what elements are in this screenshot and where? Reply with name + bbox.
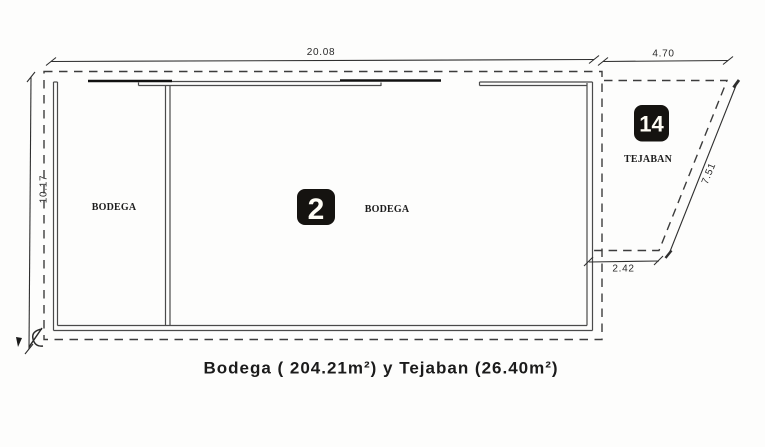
svg-text:7.51: 7.51 xyxy=(700,161,719,186)
svg-text:BODEGA: BODEGA xyxy=(365,204,410,215)
svg-text:2.42: 2.42 xyxy=(612,264,634,275)
svg-text:BODEGA: BODEGA xyxy=(92,202,137,213)
svg-text:Bodega ( 204.21m²) y Tejaban (: Bodega ( 204.21m²) y Tejaban (26.40m²) xyxy=(203,359,558,378)
svg-text:20.08: 20.08 xyxy=(307,47,336,58)
svg-text:TEJABAN: TEJABAN xyxy=(624,154,673,165)
svg-text:14: 14 xyxy=(639,112,664,137)
svg-text:2: 2 xyxy=(308,193,325,226)
svg-text:4.70: 4.70 xyxy=(652,49,674,60)
